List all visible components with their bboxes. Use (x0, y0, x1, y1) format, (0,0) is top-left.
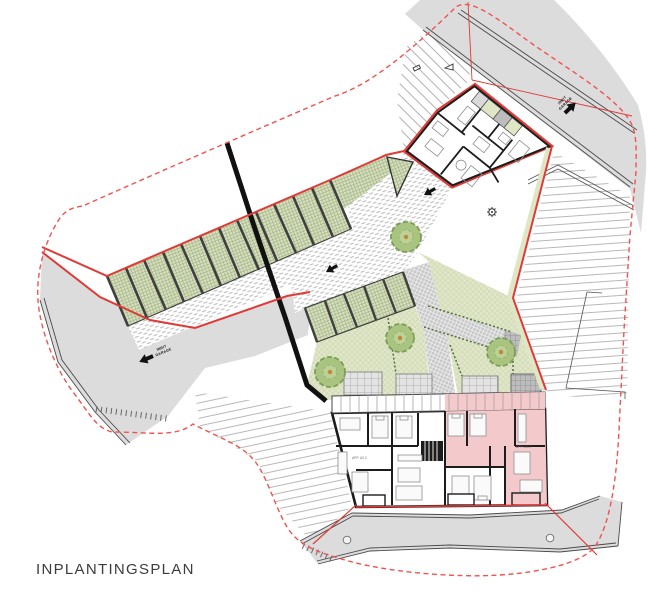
apartment-label: APP. A2.2 (352, 456, 367, 460)
tree-icon (487, 338, 515, 366)
site-plan-canvas: INRIT GARAGE INRIT GARAGE (0, 0, 671, 600)
tree-icon (391, 222, 421, 252)
gear-icon (487, 207, 497, 217)
street-balcony (448, 494, 474, 505)
street-balcony (512, 493, 540, 505)
apartment-label: APP. A1.2 (516, 445, 531, 449)
tree-icon (386, 324, 414, 352)
manhole-icon (343, 536, 351, 544)
page-title: INPLANTINGSPLAN (36, 561, 195, 578)
tree-icon (315, 357, 345, 387)
terrace-tiles (396, 374, 432, 396)
neighbour-parcel-west (195, 392, 352, 543)
main-building: APP. A2.2 APP. A1.2 (332, 392, 547, 507)
stair-core (421, 441, 443, 461)
manhole-icon (546, 534, 554, 542)
terrace-tiles (344, 372, 382, 395)
site-plan-page: INRIT GARAGE INRIT GARAGE (0, 0, 671, 600)
street-balcony (363, 495, 385, 506)
